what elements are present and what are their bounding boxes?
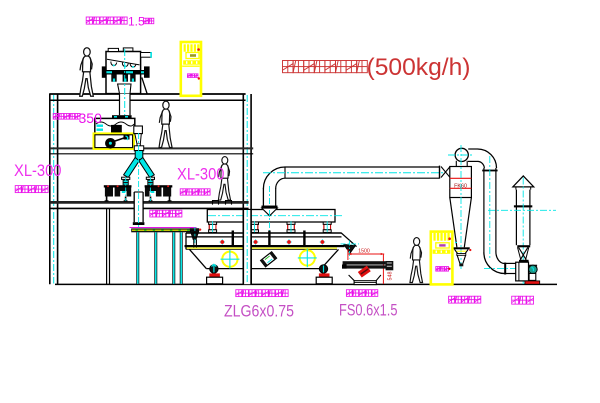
- svg-text:1.5: 1.5: [128, 15, 145, 29]
- svg-text:350: 350: [79, 110, 103, 126]
- svg-text:ZLG6x0.75: ZLG6x0.75: [224, 302, 294, 321]
- svg-text:XL-300: XL-300: [14, 161, 62, 180]
- svg-text:548: 548: [388, 272, 394, 281]
- svg-text:1500: 1500: [358, 249, 370, 255]
- svg-text:(500kg/h): (500kg/h): [367, 54, 471, 81]
- svg-text:XL-300: XL-300: [177, 164, 225, 183]
- svg-text:FS0.6x1.5: FS0.6x1.5: [339, 301, 398, 320]
